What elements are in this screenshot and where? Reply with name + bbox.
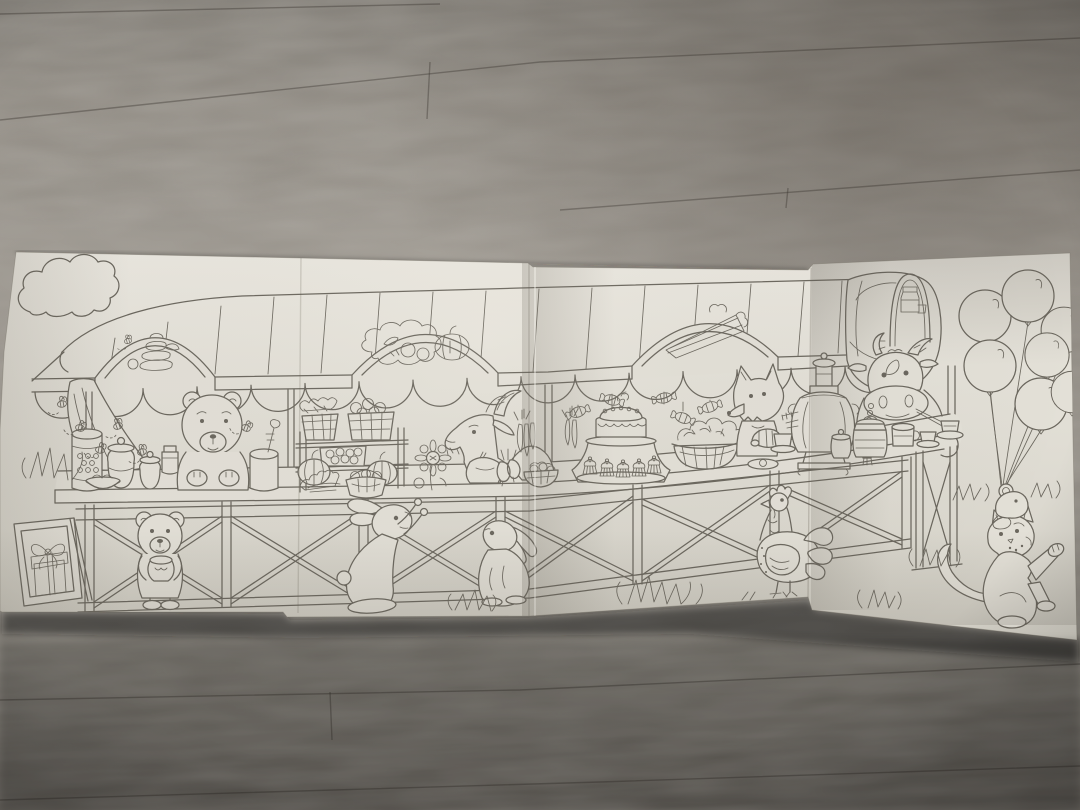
bottom-shadow — [0, 640, 1080, 810]
scene-svg: Panoramic children's coloring page of an… — [0, 0, 1080, 810]
photo-of-coloring-page: Panoramic children's coloring page of an… — [0, 0, 1080, 810]
